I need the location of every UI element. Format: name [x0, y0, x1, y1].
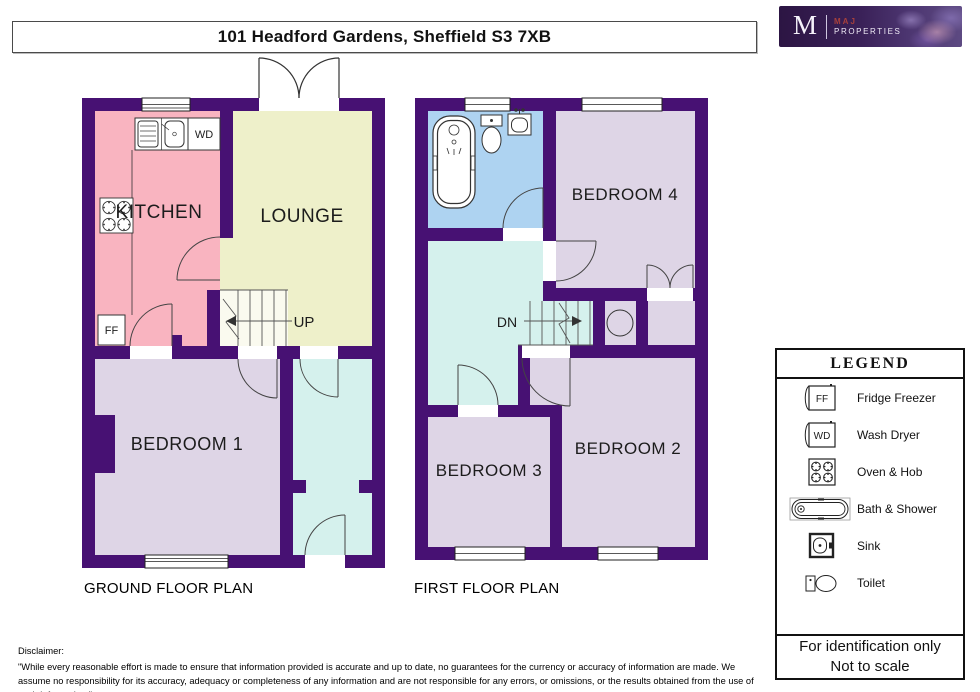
logo-name-top: MAJ	[834, 17, 901, 26]
toilet-icon	[785, 568, 857, 598]
lounge-label: LOUNGE	[260, 206, 343, 227]
fridge-freezer-label: FF	[105, 325, 119, 337]
bathroom-sink-icon	[508, 114, 531, 135]
disclaimer-text: "While every reasonable effort is made t…	[18, 661, 768, 692]
legend-title: LEGEND	[777, 350, 963, 379]
lounge-room	[220, 238, 233, 290]
wardrobe-cupboard	[648, 301, 695, 345]
legend-label: Bath & Shower	[857, 502, 937, 516]
first-floor-plan: BEDROOM 4 BEDROOM 3 BEDROOM 2 DN	[404, 50, 724, 595]
legend-box: LEGEND FF Fridge Freezer WD	[775, 348, 965, 636]
stairs-up-label: UP	[294, 314, 315, 331]
stairs-dn-label: DN	[497, 314, 517, 330]
legend-row-wash-dryer: WD Wash Dryer	[777, 416, 963, 453]
svg-text:WD: WD	[814, 431, 831, 442]
disclaimer-heading: Disclaimer:	[18, 645, 768, 659]
address-title-box: 101 Headford Gardens, Sheffield S3 7XB	[12, 21, 757, 53]
identification-note-box: For identification only Not to scale	[775, 634, 965, 680]
toilet-button	[490, 119, 493, 122]
cylinder-cupboard	[605, 301, 636, 345]
ground-floor-plan: WD FF KITCHEN LOUNGE BEDROOM 1 UP	[76, 50, 406, 595]
wash-dryer-label: WD	[195, 129, 213, 141]
oven-hob-icon	[785, 457, 857, 487]
legend-row-oven-hob: Oven & Hob	[777, 453, 963, 490]
fridge-freezer-icon: FF	[785, 383, 857, 413]
stairs-area-gf	[220, 290, 288, 346]
bath-shower-icon	[785, 494, 857, 524]
agency-logo: M MAJ PROPERTIES	[779, 6, 962, 47]
bedroom3-label: BEDROOM 3	[436, 461, 543, 480]
bedroom3-room	[428, 417, 550, 547]
french-doors	[259, 58, 339, 98]
note-line-1: For identification only	[777, 637, 963, 657]
legend-label: Toilet	[857, 576, 885, 590]
logo-name-bottom: PROPERTIES	[834, 27, 901, 36]
address-title: 101 Headford Gardens, Sheffield S3 7XB	[218, 27, 552, 47]
ground-floor-caption: GROUND FLOOR PLAN	[84, 580, 253, 597]
legend-label: Oven & Hob	[857, 465, 922, 479]
note-line-2: Not to scale	[777, 657, 963, 677]
wash-dryer-icon: WD	[785, 420, 857, 450]
legend-label: Fridge Freezer	[857, 391, 936, 405]
first-floor-caption: FIRST FLOOR PLAN	[414, 580, 559, 597]
legend-label: Sink	[857, 539, 880, 553]
legend-row-sink: Sink	[777, 527, 963, 564]
kitchen-label: KITCHEN	[116, 202, 203, 223]
legend-row-toilet: Toilet	[777, 564, 963, 601]
bedroom4-label: BEDROOM 4	[572, 185, 679, 204]
legend-label: Wash Dryer	[857, 428, 920, 442]
bedroom1-room	[95, 359, 280, 555]
bath-icon	[433, 116, 475, 208]
sink-icon	[785, 531, 857, 561]
legend-row-bath-shower: Bath & Shower	[777, 490, 963, 527]
hallway-gf	[293, 359, 372, 555]
logo-monogram: M	[779, 12, 826, 41]
legend-row-fridge-freezer: FF Fridge Freezer	[777, 379, 963, 416]
disclaimer: Disclaimer: "While every reasonable effo…	[18, 645, 768, 692]
bedroom2-label: BEDROOM 2	[575, 439, 682, 458]
floorplan-page: 101 Headford Gardens, Sheffield S3 7XB M…	[0, 0, 980, 692]
bedroom1-label: BEDROOM 1	[131, 434, 244, 454]
svg-text:FF: FF	[816, 394, 828, 405]
